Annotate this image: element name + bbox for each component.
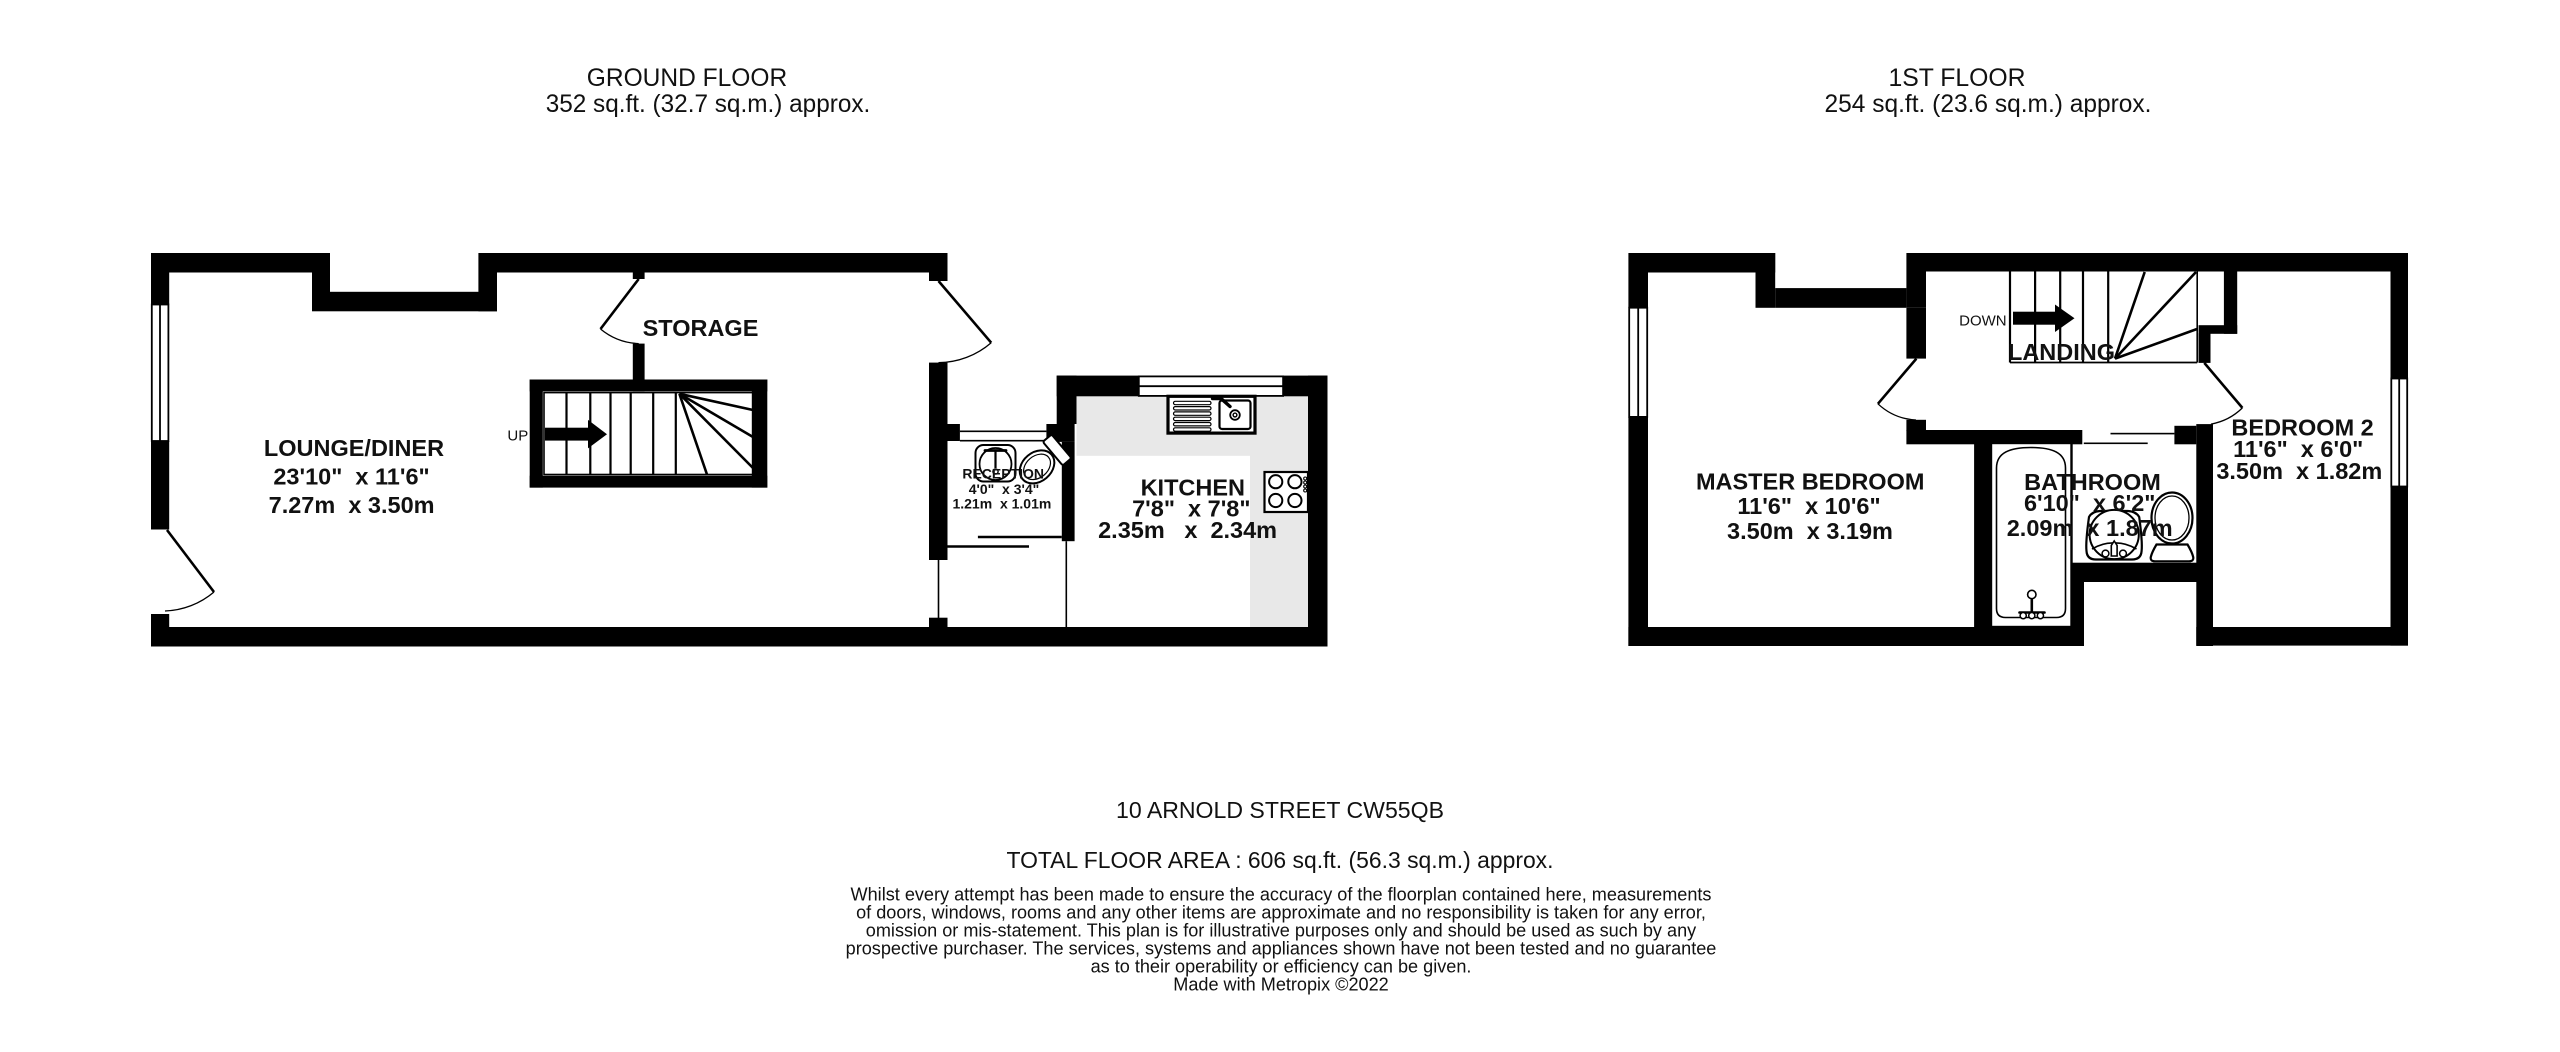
svg-text:6'10" x 6'2": 6'10" x 6'2" [2024,490,2155,516]
svg-text:RECEPTION: RECEPTION [962,466,1044,482]
svg-text:as to their operability or eff: as to their operability or efficiency ca… [1091,957,1472,977]
svg-text:UP: UP [507,428,528,445]
svg-text:MASTER BEDROOM: MASTER BEDROOM [1696,469,1924,495]
svg-text:STORAGE: STORAGE [643,315,759,341]
svg-text:LOUNGE/DINER: LOUNGE/DINER [264,435,444,461]
svg-text:254 sq.ft. (23.6 sq.m.) approx: 254 sq.ft. (23.6 sq.m.) approx. [1825,90,2152,118]
svg-text:10 ARNOLD STREET CW55QB: 10 ARNOLD STREET CW55QB [1116,797,1444,823]
svg-text:of doors, windows, rooms and a: of doors, windows, rooms and any other i… [856,903,1706,923]
svg-text:Whilst every attempt has been: Whilst every attempt has been made to en… [851,885,1712,905]
svg-text:TOTAL FLOOR AREA : 606 sq.ft.: TOTAL FLOOR AREA : 606 sq.ft. (56.3 sq.m… [1007,847,1554,873]
svg-text:1.21m x 1.01m: 1.21m x 1.01m [952,496,1051,512]
svg-text:352 sq.ft. (32.7 sq.m.) approx: 352 sq.ft. (32.7 sq.m.) approx. [546,90,871,118]
svg-text:omission or mis-statement. Thi: omission or mis-statement. This plan is … [866,921,1697,941]
svg-text:2.35m x 2.34m: 2.35m x 2.34m [1098,517,1277,543]
svg-text:2.09m x 1.87m: 2.09m x 1.87m [2007,515,2173,541]
svg-text:prospective purchaser. The ser: prospective purchaser. The services, sys… [846,939,1717,959]
svg-text:LANDING: LANDING [2008,339,2115,365]
svg-text:Made with Metropix ©2022: Made with Metropix ©2022 [1173,975,1388,995]
svg-text:23'10" x 11'6": 23'10" x 11'6" [273,464,429,490]
svg-text:3.50m x 3.19m: 3.50m x 3.19m [1727,518,1893,544]
svg-text:3.50m x 1.82m: 3.50m x 1.82m [2216,458,2382,484]
svg-text:DOWN: DOWN [1959,313,2007,330]
svg-text:7.27m x 3.50m: 7.27m x 3.50m [269,492,435,518]
svg-text:GROUND FLOOR: GROUND FLOOR [587,64,787,92]
svg-text:11'6" x 10'6": 11'6" x 10'6" [1737,493,1880,519]
svg-text:1ST FLOOR: 1ST FLOOR [1888,64,2025,92]
